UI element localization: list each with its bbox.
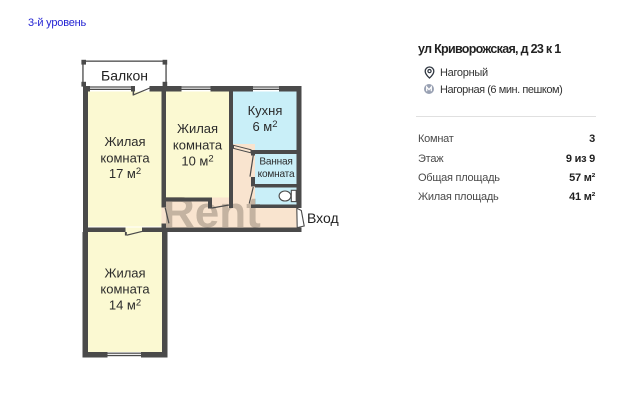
svg-text:Жилая: Жилая [104, 266, 145, 281]
svg-text:комната: комната [100, 151, 150, 166]
svg-text:Жилая: Жилая [177, 121, 218, 136]
svg-text:комната: комната [100, 282, 150, 297]
svg-text:комната: комната [258, 169, 295, 180]
svg-text:Балкон: Балкон [101, 67, 148, 83]
svg-text:Жилая: Жилая [104, 134, 145, 149]
svg-text:комната: комната [173, 138, 223, 153]
svg-text:Вход: Вход [307, 210, 339, 226]
svg-text:Ванная: Ванная [259, 157, 292, 168]
svg-text:Кухня: Кухня [248, 103, 283, 118]
